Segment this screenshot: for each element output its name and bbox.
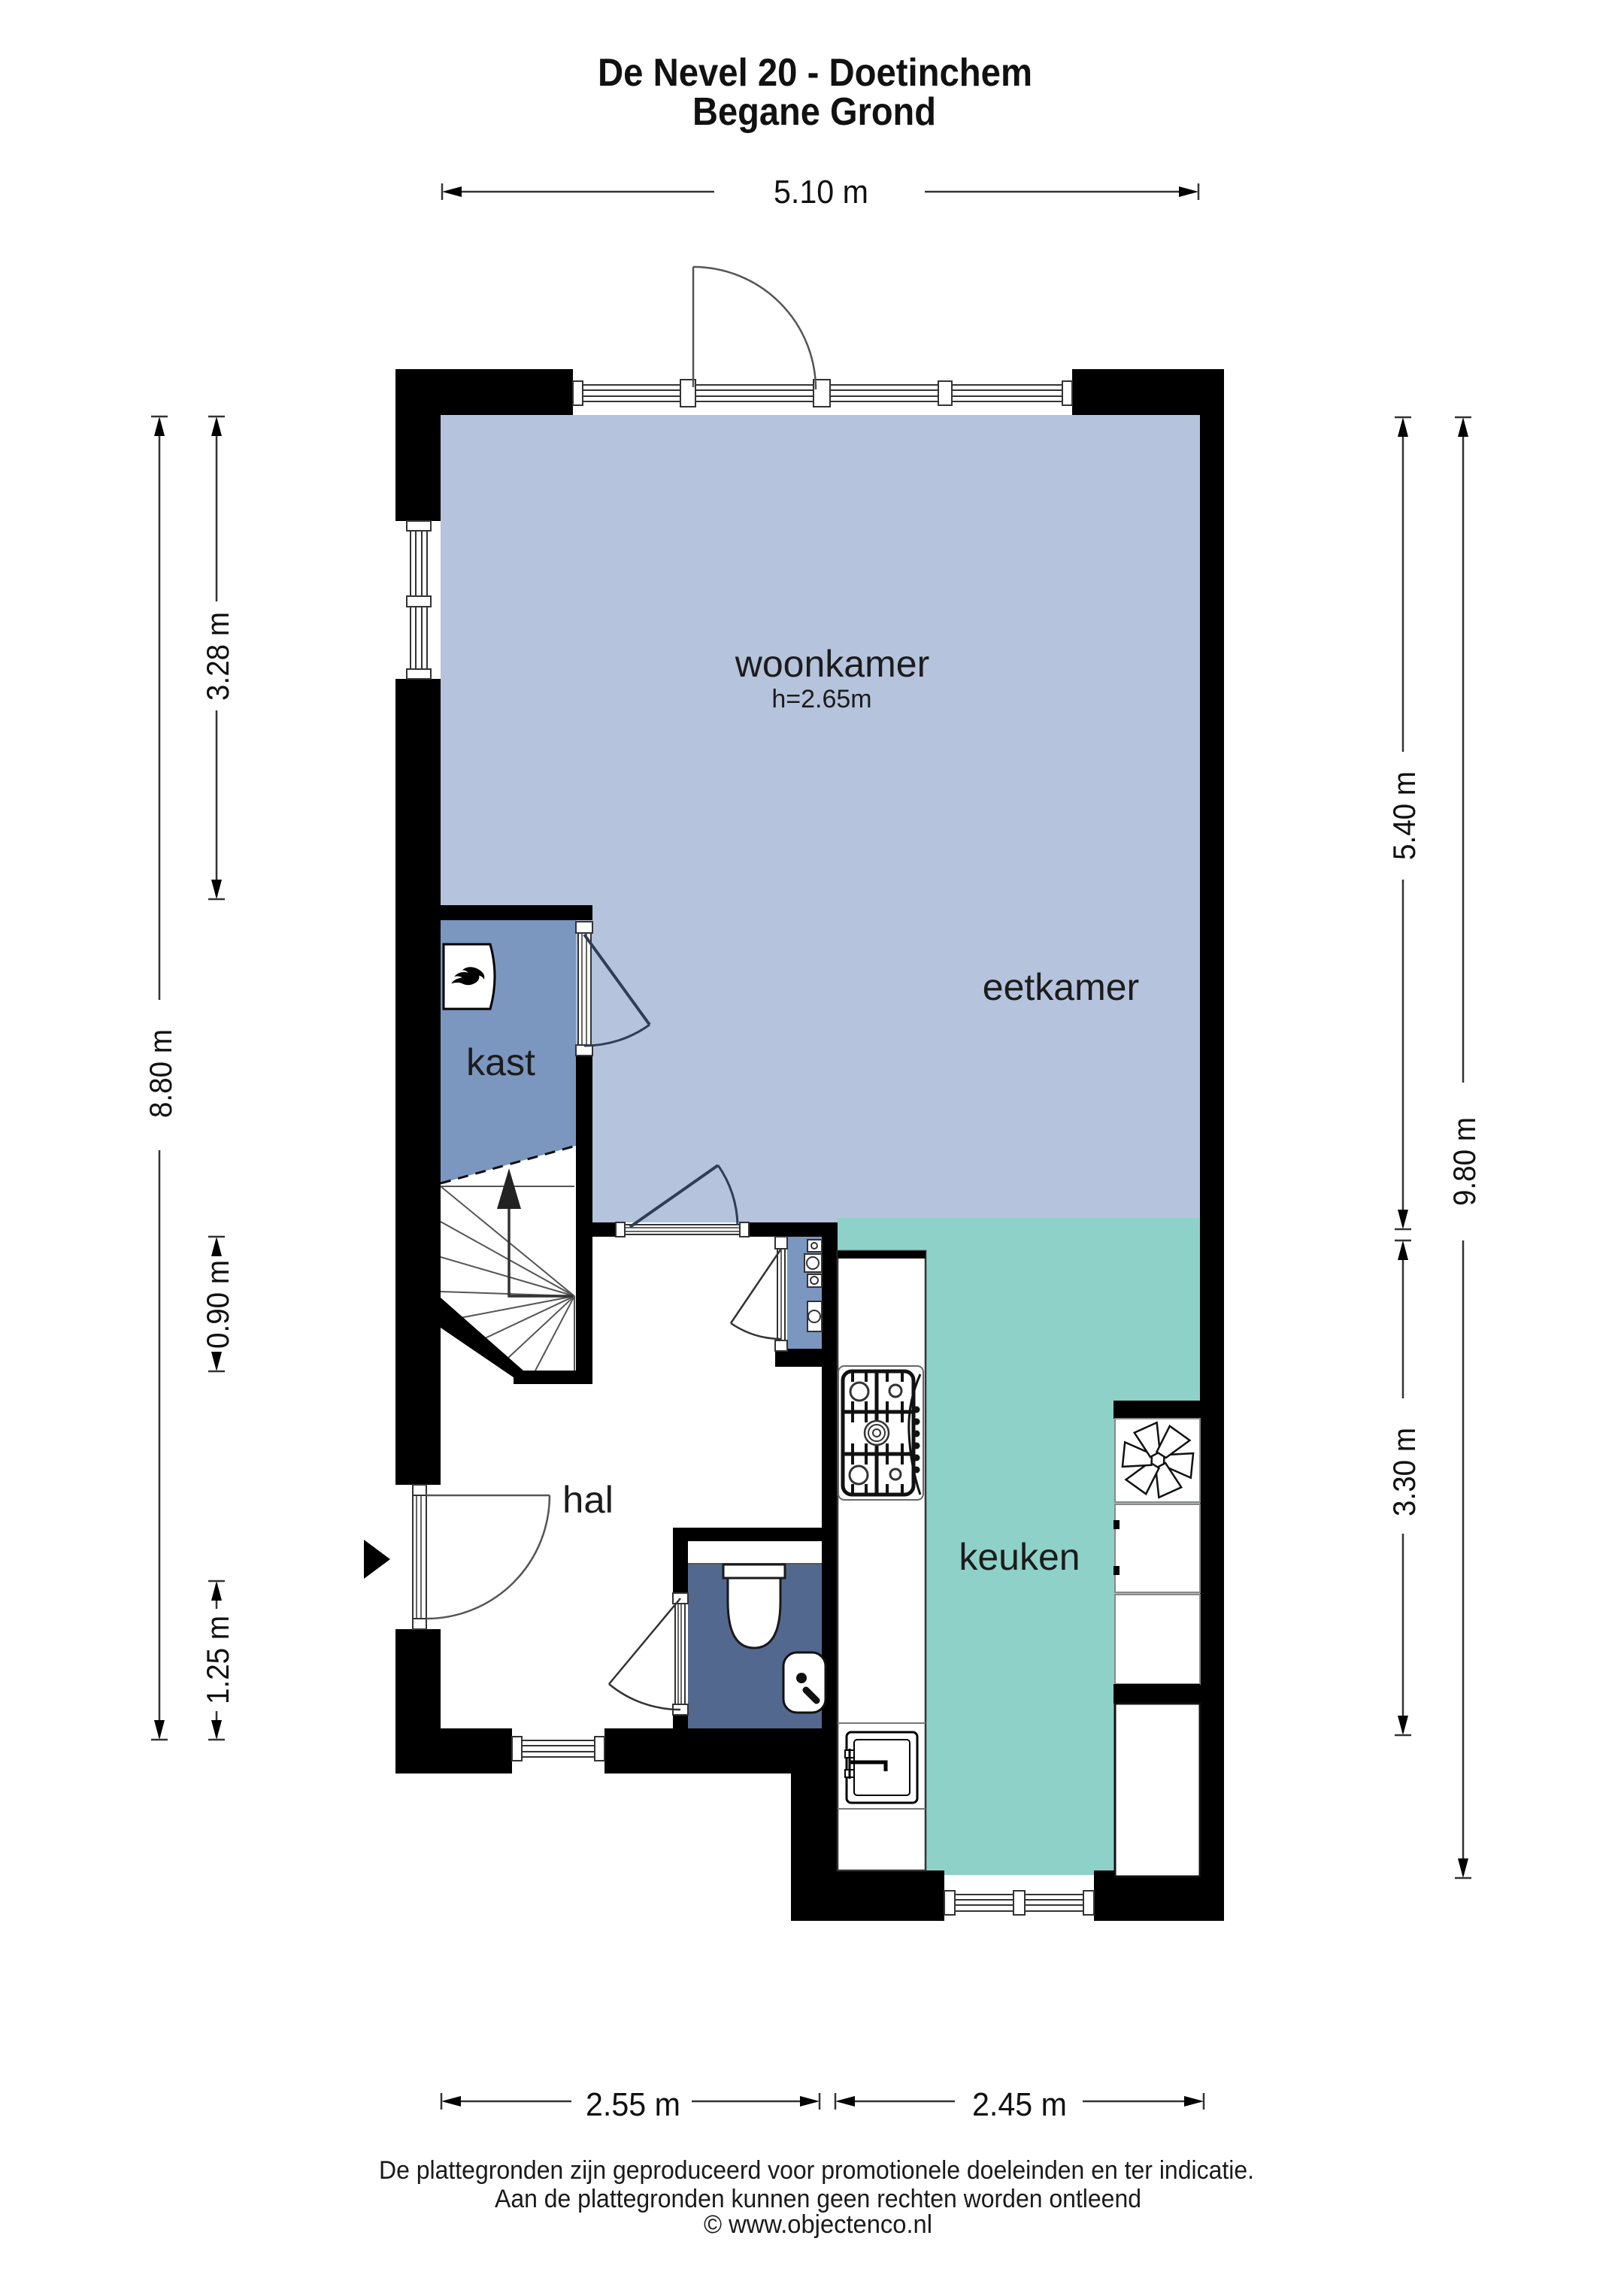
svg-text:© www.objectenco.nl: © www.objectenco.nl bbox=[704, 2210, 932, 2239]
svg-text:2.45 m: 2.45 m bbox=[972, 2086, 1067, 2123]
svg-text:De Nevel 20 - Doetinchem: De Nevel 20 - Doetinchem bbox=[598, 51, 1032, 95]
svg-text:Begane Grond: Begane Grond bbox=[692, 90, 936, 134]
svg-text:9.80 m: 9.80 m bbox=[1447, 1117, 1482, 1206]
svg-text:3.28 m: 3.28 m bbox=[200, 612, 235, 701]
svg-text:kast: kast bbox=[466, 1041, 535, 1083]
svg-text:woonkamer: woonkamer bbox=[735, 643, 929, 685]
svg-text:8.80 m: 8.80 m bbox=[143, 1029, 178, 1118]
svg-text:h=2.65m: h=2.65m bbox=[771, 685, 871, 713]
svg-text:5.40 m: 5.40 m bbox=[1386, 771, 1422, 860]
svg-text:eetkamer: eetkamer bbox=[983, 966, 1139, 1008]
svg-text:keuken: keuken bbox=[959, 1536, 1080, 1578]
svg-text:hal: hal bbox=[562, 1479, 614, 1521]
svg-text:2.55 m: 2.55 m bbox=[586, 2086, 680, 2123]
svg-text:3.30 m: 3.30 m bbox=[1386, 1428, 1422, 1516]
svg-text:Aan de plattegronden kunnen ge: Aan de plattegronden kunnen geen rechten… bbox=[495, 2185, 1141, 2213]
svg-text:1.25 m: 1.25 m bbox=[200, 1616, 235, 1704]
svg-text:De plattegronden zijn geproduc: De plattegronden zijn geproduceerd voor … bbox=[379, 2156, 1254, 2185]
svg-text:0.90 m: 0.90 m bbox=[200, 1260, 235, 1349]
svg-text:5.10 m: 5.10 m bbox=[774, 174, 868, 211]
